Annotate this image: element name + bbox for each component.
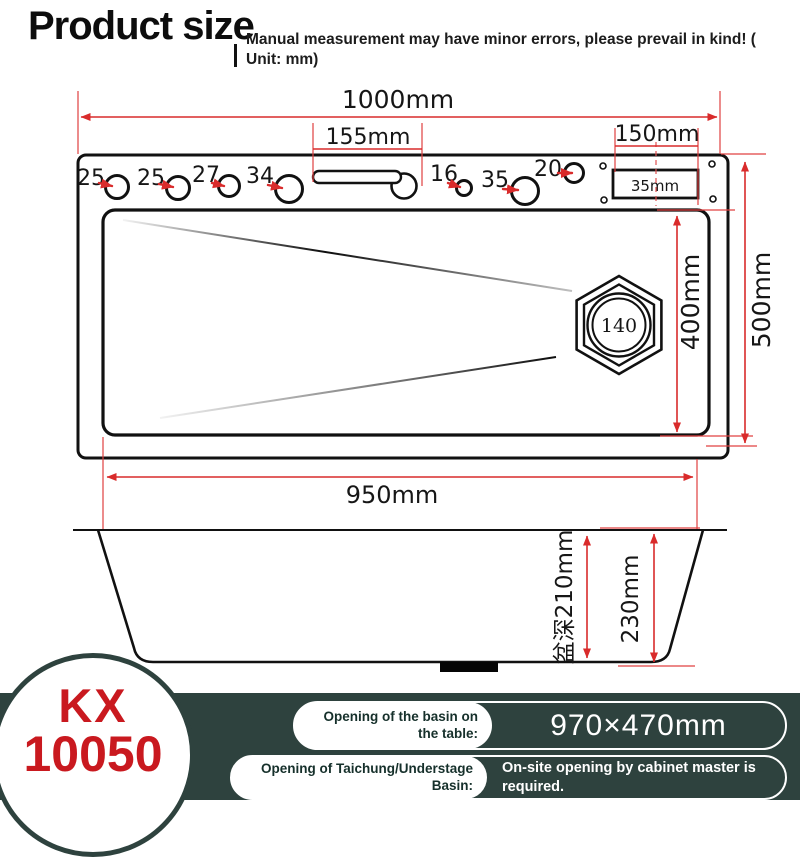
hole-label: 25	[137, 166, 165, 191]
screw-hole	[710, 196, 716, 202]
dim-label: 1000mm	[342, 85, 454, 114]
dim-label: 150mm	[615, 122, 700, 147]
dim-label: 230mm	[618, 555, 644, 644]
faucet-slot	[313, 171, 417, 199]
screw-hole	[601, 197, 607, 203]
hole-label: 16	[430, 162, 458, 187]
spec-value: 970×470mm	[492, 703, 785, 748]
hole-circle	[457, 181, 472, 196]
dim-label: 盆深210mm	[552, 530, 578, 665]
hole-circle	[167, 177, 190, 200]
hole-circle	[276, 176, 303, 203]
model-badge: KX 10050	[0, 653, 195, 857]
dim-label: 400mm	[676, 254, 705, 350]
basin-profile	[98, 530, 703, 662]
dim-label: 155mm	[326, 125, 411, 150]
hole-label: 25	[77, 166, 105, 191]
model-code-bottom: 10050	[23, 729, 162, 780]
spec-row-understage-opening: Opening of Taichung/Understage Basin: On…	[230, 755, 787, 800]
slope-line-bottom	[160, 357, 556, 418]
top-view: 140 25 25 27 34 16 35	[77, 85, 776, 458]
slope-line-top	[123, 220, 572, 291]
spec-value: On-site opening by cabinet master is req…	[487, 757, 785, 798]
drain-hexagon: 140	[577, 276, 662, 374]
sink-dimension-drawing: 140 25 25 27 34 16 35	[0, 0, 800, 692]
drain-size-label: 140	[601, 315, 637, 337]
screw-hole	[600, 163, 606, 169]
hole-label: 20	[534, 157, 562, 182]
overflow-box-label: 35mm	[631, 177, 679, 195]
dim-label: 950mm	[346, 481, 439, 509]
model-code-top: KX	[58, 684, 127, 729]
spec-label: Opening of Taichung/Understage Basin:	[231, 756, 487, 799]
drain-stub	[440, 662, 498, 672]
spec-row-table-opening: Opening of the basin on the table: 970×4…	[293, 701, 787, 750]
dim-bottom-width: 950mm	[103, 437, 697, 530]
dim-label: 500mm	[747, 252, 776, 348]
dim-basin-depth: 盆深210mm	[552, 530, 587, 665]
screw-hole	[709, 161, 715, 167]
hole-circle	[106, 176, 129, 199]
dim-inner-depth: 400mm	[657, 210, 753, 436]
side-view: 950mm 盆深210mm 230mm	[73, 437, 727, 672]
spec-label: Opening of the basin on the table:	[294, 702, 492, 749]
